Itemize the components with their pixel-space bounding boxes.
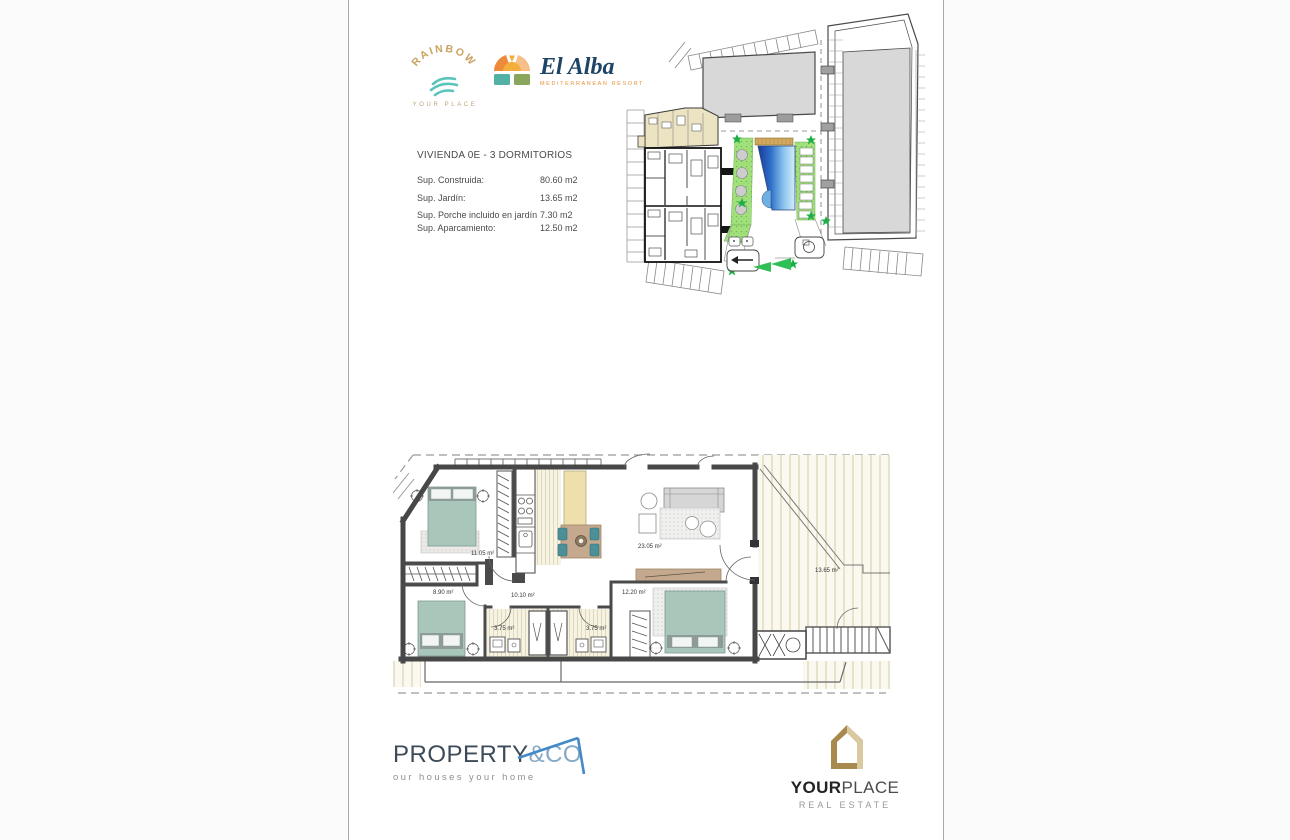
property-co-logo: PROPERTY&CO our houses your home bbox=[393, 742, 582, 783]
stairs bbox=[806, 627, 890, 653]
car-icon bbox=[795, 237, 824, 258]
units-block bbox=[645, 148, 743, 262]
pillow bbox=[422, 635, 439, 646]
your-place-bold: YOUR bbox=[791, 778, 842, 797]
el-alba-sun-icon bbox=[492, 52, 532, 96]
room-label-bathroom-2: 3.75 m² bbox=[586, 626, 606, 632]
hall-closet bbox=[405, 565, 477, 583]
pillow bbox=[672, 637, 692, 647]
sink-icon bbox=[576, 639, 588, 652]
row-label: Sup. Porche incluido en jardín bbox=[417, 210, 540, 220]
row-label: Sup. Jardín: bbox=[417, 193, 540, 203]
room-label-garden: 13.65 m² bbox=[815, 568, 839, 574]
room-label-hallway: 10.10 m² bbox=[511, 593, 535, 599]
highlighted-unit bbox=[638, 108, 718, 148]
shower bbox=[550, 611, 567, 655]
your-place-tagline: REAL ESTATE bbox=[786, 800, 904, 810]
building-east bbox=[821, 14, 925, 240]
rainbow-arc-text: RAINBOW bbox=[409, 45, 478, 69]
room-label-bedroom-2: 8.90 m² bbox=[433, 590, 453, 596]
bathroom-2 bbox=[550, 609, 609, 657]
property-row: Sup. Jardín: 13.65 m2 bbox=[417, 193, 589, 203]
your-place-logo: YOURPLACE REAL ESTATE bbox=[786, 721, 904, 810]
row-value: 13.65 m2 bbox=[540, 193, 578, 203]
sink-icon bbox=[508, 639, 520, 652]
wall-block bbox=[512, 573, 525, 583]
brochure-sheet: RAINBOW YOUR PLACE El Alba MEDITERRANEAN… bbox=[0, 0, 1290, 840]
dining-area bbox=[558, 525, 601, 558]
bathroom-1 bbox=[487, 609, 546, 657]
property-info: VIVIENDA 0E - 3 DORMITORIOS Sup. Constru… bbox=[417, 150, 589, 233]
row-value: 80.60 m2 bbox=[540, 175, 578, 185]
rainbow-tagline: YOUR PLACE bbox=[413, 102, 478, 108]
row-label: Sup. Aparcamiento: bbox=[417, 223, 540, 233]
side-table bbox=[639, 514, 656, 533]
property-row: Sup. Aparcamiento: 12.50 m2 bbox=[417, 223, 589, 233]
door-jamb bbox=[750, 577, 759, 584]
room-label-living: 23.05 m² bbox=[638, 544, 662, 550]
pillow bbox=[431, 489, 451, 499]
row-value: 7.30 m2 bbox=[540, 210, 573, 220]
driveway-lines bbox=[425, 661, 846, 682]
house-icon bbox=[822, 721, 868, 771]
roof-icon bbox=[516, 726, 594, 778]
site-plan bbox=[625, 10, 925, 300]
room-label-bathroom-1: 3.75 m² bbox=[494, 626, 514, 632]
parking-bottom-left bbox=[646, 259, 724, 294]
property-title: VIVIENDA 0E - 3 DORMITORIOS bbox=[417, 150, 589, 161]
room-label-bedroom-1: 11.05 m² bbox=[471, 551, 494, 557]
armchair bbox=[641, 493, 657, 509]
your-place-light: PLACE bbox=[841, 778, 899, 797]
pillow bbox=[453, 489, 473, 499]
wall-block bbox=[485, 559, 493, 585]
property-row: Sup. Construida: 80.60 m2 bbox=[417, 175, 589, 185]
parking-left bbox=[627, 110, 644, 262]
pillow bbox=[443, 635, 460, 646]
tv-bench bbox=[636, 569, 721, 581]
row-label: Sup. Construida: bbox=[417, 175, 540, 185]
room-label-bedroom-3: 12.20 m² bbox=[622, 590, 646, 596]
door-jamb bbox=[750, 540, 759, 547]
pouf bbox=[686, 517, 699, 530]
building-north bbox=[703, 52, 815, 122]
pillow bbox=[698, 637, 718, 647]
pouf bbox=[700, 521, 716, 537]
wave-icon bbox=[431, 78, 457, 95]
row-value: 12.50 m2 bbox=[540, 223, 578, 233]
el-alba-logo: El Alba MEDITERRANEAN RESORT bbox=[492, 52, 644, 96]
property-row: Sup. Porche incluido en jardín 7.30 m2 bbox=[417, 210, 589, 220]
utility-room bbox=[756, 631, 806, 659]
property-co-name: PROPERTY bbox=[393, 742, 529, 768]
floor-plan: 11.05 m² 8.90 m² 10.10 m² 3.75 m² 3.75 m… bbox=[393, 441, 898, 703]
rainbow-logo: RAINBOW YOUR PLACE bbox=[398, 45, 490, 109]
toilet-icon bbox=[591, 637, 606, 652]
shower bbox=[529, 611, 546, 655]
pool-steps bbox=[762, 190, 771, 208]
parking-bottom-right bbox=[843, 247, 923, 276]
toilet-icon bbox=[490, 637, 505, 652]
